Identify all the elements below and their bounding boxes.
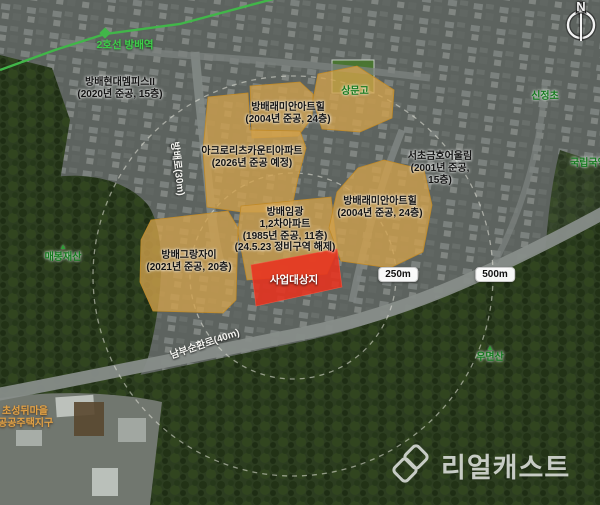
complex-name: 방배래미안아트힐 [337, 196, 422, 208]
complex-detail: (24.5.23 정비구역 해제) [235, 242, 336, 254]
complex-name: 방배래미안아트힐 [245, 102, 330, 114]
complex-label-geumho: 서초금호어울림 (2001년 준공, 15층) [408, 151, 472, 186]
district-name: 공공주택지구 [0, 418, 53, 430]
place-label-sangmun: 상문고 [341, 86, 369, 98]
mountain-icon: ▲ [59, 243, 67, 251]
complex-detail: (2021년 준공, 20층) [146, 262, 231, 274]
complex-detail: (2001년 준공, [408, 163, 472, 175]
complex-detail: (2026년 준공 예정) [201, 158, 302, 170]
subway-station-label: 2호선 방배역 [96, 39, 153, 51]
complex-name: 방배현대멤피스II [77, 77, 162, 89]
complex-detail: (2020년 준공, 15층) [77, 89, 162, 101]
satellite-map[interactable]: N 2호선 방배역 방배현대멤피스II (2020년 준공, 15층) 방배래미… [0, 0, 600, 505]
complex-name: 아크로리츠카운티아파트 [201, 146, 302, 158]
complex-name: 1,2차아파트 [235, 219, 336, 231]
complex-label-imgwang: 방배임광 1,2차아파트 (1985년 준공, 11층) (24.5.23 정비… [235, 207, 336, 254]
watermark: 리얼캐스트 [392, 444, 570, 486]
district-name: 초성뒤마을 [2, 406, 53, 418]
complex-label-hyundai: 방배현대멤피스II (2020년 준공, 15층) [77, 77, 162, 101]
complex-name: 방배그랑자이 [146, 250, 231, 262]
place-label-maebong: 매봉재산 [45, 252, 82, 264]
complex-label-acro: 아크로리츠카운티아파트 (2026년 준공 예정) [201, 146, 302, 170]
complex-detail: (1985년 준공, 11층) [235, 231, 336, 243]
complex-label-grangjai: 방배그랑자이 (2021년 준공, 20층) [146, 250, 231, 274]
watermark-logo-icon [392, 444, 432, 486]
complex-name: 방배임광 [235, 207, 336, 219]
complex-detail: 15층) [408, 175, 472, 187]
complex-label-raemian-top: 방배래미안아트힐 (2004년 준공, 24층) [245, 102, 330, 126]
complex-detail: (2004년 준공, 24층) [245, 114, 330, 126]
place-label-gugak: 국립국악원 [570, 158, 600, 170]
place-label-umyeon: 우면산 [476, 352, 504, 364]
compass-north-label: N [576, 0, 585, 14]
watermark-brand: 리얼캐스트 [441, 446, 570, 485]
complex-label-raemian-right: 방배래미안아트힐 (2004년 준공, 24층) [337, 196, 422, 220]
project-site-label: 사업대상지 [270, 274, 318, 286]
complex-detail: (2004년 준공, 24층) [337, 208, 422, 220]
complex-name: 서초금호어울림 [408, 151, 472, 163]
place-label-sinjeong: 신정초 [531, 91, 559, 103]
scale-badge-500m: 500m [475, 267, 515, 282]
scale-badge-250m: 250m [378, 267, 418, 282]
mountain-icon: ▲ [486, 344, 494, 352]
place-label-seongdwi: 초성뒤마을 공공주택지구 [2, 406, 53, 430]
